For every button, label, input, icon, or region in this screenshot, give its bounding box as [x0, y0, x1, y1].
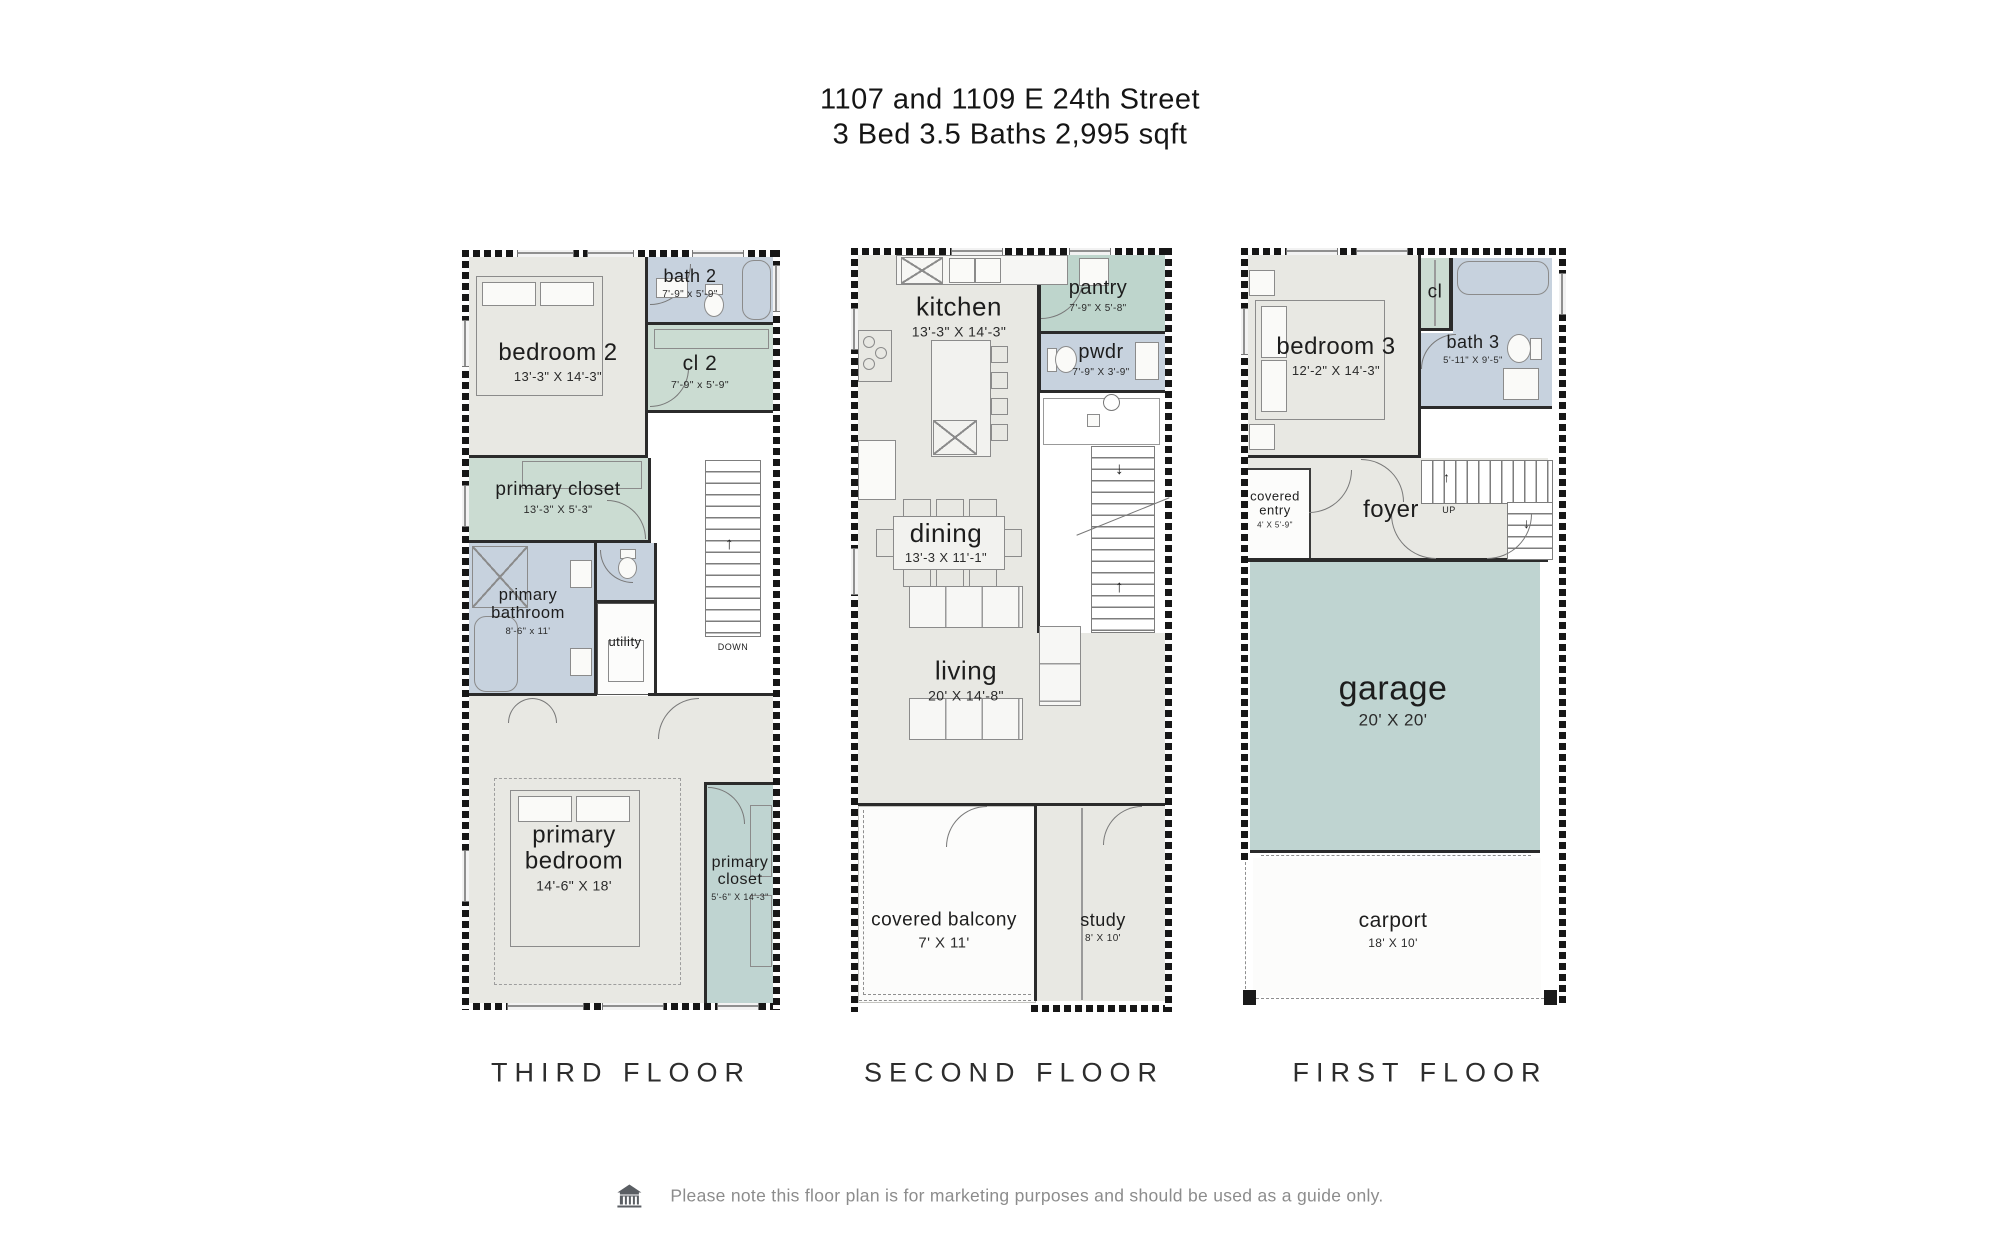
bathtub-fixture: [1457, 261, 1549, 295]
wall: [851, 248, 1172, 255]
chair: [936, 499, 964, 517]
wall: [1037, 390, 1165, 393]
chair: [1004, 529, 1022, 557]
room-label-cl: cl: [1428, 283, 1443, 304]
room-label-foyer: foyer: [1363, 497, 1419, 523]
wall: [704, 782, 773, 785]
primary-closet-name: primary closet: [495, 480, 620, 501]
wall: [773, 250, 780, 1010]
toilet-fixture: [1507, 334, 1531, 363]
cabinet: [933, 420, 977, 455]
window: [462, 485, 469, 527]
carport-open-edge: [1245, 862, 1246, 994]
carport-name: carport: [1359, 910, 1428, 933]
dining-dims: 13'-3 X 11'-1": [905, 551, 987, 565]
bath-3-dims: 5'-11" X 9'-5": [1443, 357, 1503, 367]
cl-2-dims: 7'-9" x 5'-9": [671, 380, 729, 391]
wall: [1031, 1005, 1172, 1012]
pillow: [540, 282, 594, 306]
wall: [858, 803, 1165, 806]
room-label-covered-balcony: covered balcony 7' X 11': [871, 911, 1017, 952]
window: [507, 1003, 584, 1010]
closet-shelf: [654, 329, 769, 349]
window: [462, 320, 469, 367]
floor-plan-page: 1107 and 1109 E 24th Street 3 Bed 3.5 Ba…: [0, 0, 2000, 1250]
stool: [991, 346, 1008, 363]
wall: [648, 458, 651, 540]
room-label-primary-bedroom: primary bedroom 14'-6" X 18': [492, 823, 657, 894]
utility-name: utility: [608, 635, 641, 649]
chair: [969, 569, 997, 587]
covered-balcony-name: covered balcony: [871, 911, 1017, 932]
window: [1356, 248, 1408, 255]
wall: [1250, 850, 1540, 853]
pillow: [482, 282, 536, 306]
primary-bedroom-name: primary bedroom: [492, 823, 657, 875]
chair: [969, 499, 997, 517]
bedroom-2-dims: 13'-3" X 14'-3": [498, 370, 617, 384]
cabinet: [901, 257, 943, 284]
study-dims: 8' X 10': [1080, 934, 1126, 945]
footer-note: Please note this floor plan is for marke…: [670, 1186, 1383, 1207]
primary-closet-lower-name: primary closet: [706, 854, 774, 889]
pwdr-name: pwdr: [1072, 342, 1129, 364]
burner: [863, 358, 875, 370]
window: [773, 265, 780, 312]
page-title: 1107 and 1109 E 24th Street: [820, 84, 1200, 117]
room-label-bedroom-3: bedroom 3 12'-2" X 14'-3": [1276, 334, 1395, 378]
window: [717, 1003, 759, 1010]
window: [1241, 308, 1248, 355]
wall: [1037, 393, 1040, 633]
pantry-name: pantry: [1069, 278, 1128, 300]
room-study: [1037, 806, 1165, 1001]
chair: [903, 569, 931, 587]
down-arrow-icon: ↓: [1523, 516, 1530, 530]
up-arrow-icon: ↑: [1443, 470, 1450, 484]
wall: [645, 257, 648, 455]
house-icon: [616, 1185, 642, 1208]
first-floor-plan: UP ↑ ↓ bedroom 3 12'-2" X 14'-3" cl: [1241, 248, 1566, 1012]
newel-post-cap: [1103, 394, 1120, 411]
window: [1559, 273, 1566, 315]
room-label-primary-closet-lower: primary closet 5'-6" X 14'-3": [706, 854, 774, 902]
primary-bathroom-dims: 8'-6" x 11': [481, 627, 576, 637]
room-label-dining: dining 13'-3 X 11'-1": [905, 519, 987, 565]
wall: [597, 600, 654, 603]
room-label-primary-bathroom: primary bathroom 8'-6" x 11': [481, 587, 576, 637]
room-label-study: study 8' X 10': [1080, 911, 1126, 945]
room-label-bath-3: bath 3 5'-11" X 9'-5": [1443, 333, 1503, 367]
bath-2-name: bath 2: [662, 267, 718, 286]
sofa: [909, 586, 1023, 628]
stool: [991, 424, 1008, 441]
room-label-living: living 20' X 14'-8": [928, 656, 1004, 703]
third-floor-plan: ↑ DOWN bedroom 2: [462, 250, 780, 1010]
balcony-open-edge: [859, 1000, 1031, 1001]
wall: [469, 540, 651, 543]
study-partition-line: [1081, 808, 1083, 1000]
window: [462, 850, 469, 902]
second-floor-plan: ↓ ↑: [851, 248, 1172, 1012]
primary-bathroom-name: primary bathroom: [481, 587, 576, 623]
loveseat: [1039, 626, 1081, 706]
stool: [991, 398, 1008, 415]
sink-fixture: [570, 648, 592, 676]
fridge-fixture: [858, 440, 896, 500]
wall: [1559, 248, 1566, 1005]
sink-fixture: [570, 560, 592, 588]
room-label-carport: carport 18' X 10': [1359, 910, 1428, 950]
kitchen-dims: 13'-3" X 14'-3": [912, 324, 1006, 339]
carport-open-edge: [1251, 998, 1549, 999]
room-label-covered-entry: covered entry 4' X 5'-9": [1247, 490, 1303, 531]
room-label-utility: utility: [608, 635, 641, 649]
carport-post: [1544, 990, 1557, 1005]
stairs-down-label: DOWN: [718, 642, 749, 652]
wall: [1449, 258, 1453, 328]
carport-post: [1243, 990, 1256, 1005]
chair: [903, 499, 931, 517]
wall: [1034, 806, 1037, 1001]
carport-dims: 18' X 10': [1359, 937, 1428, 950]
wall: [1418, 406, 1552, 409]
closet-shelf: [750, 895, 772, 967]
wall: [469, 455, 648, 458]
toilet-fixture: [1530, 338, 1542, 360]
pillow: [576, 796, 630, 822]
dining-name: dining: [905, 519, 987, 547]
floor-caption-third: THIRD FLOOR: [491, 1058, 751, 1089]
wall: [1248, 558, 1548, 562]
window: [517, 250, 574, 257]
balcony-dashed-edge: [863, 810, 864, 995]
floor-caption-second: SECOND FLOOR: [864, 1058, 1164, 1089]
covered-entry-dims: 4' X 5'-9": [1247, 522, 1303, 531]
stool: [991, 372, 1008, 389]
sink-fixture: [1503, 368, 1539, 400]
room-label-pantry: pantry 7'-9" X 5'-8": [1069, 278, 1128, 314]
garage-name: garage: [1339, 670, 1448, 707]
covered-balcony-dims: 7' X 11': [871, 935, 1017, 951]
wall: [654, 543, 657, 693]
foyer-name: foyer: [1363, 497, 1419, 523]
window: [851, 308, 858, 350]
study-name: study: [1080, 911, 1126, 930]
floor-caption-first: FIRST FLOOR: [1292, 1058, 1547, 1089]
burner: [875, 347, 887, 359]
staircase: [1421, 460, 1553, 504]
wall: [648, 693, 773, 696]
room-label-bedroom-2: bedroom 2 13'-3" X 14'-3": [498, 340, 617, 384]
window: [602, 1003, 664, 1010]
bathtub-fixture: [742, 260, 771, 320]
window: [851, 548, 858, 595]
cl-2-name: cl 2: [671, 353, 729, 376]
window: [1069, 248, 1111, 255]
primary-closet-dims: 13'-3" X 5'-3": [495, 504, 620, 516]
room-label-bath-2: bath 2 7'-9" x 5'-9": [662, 267, 718, 301]
room-label-pwdr: pwdr 7'-9" X 3'-9": [1072, 342, 1129, 378]
chair: [936, 569, 964, 587]
sofa: [909, 698, 1023, 740]
down-arrow-icon: ↓: [1115, 460, 1124, 477]
bedroom-3-name: bedroom 3: [1276, 334, 1395, 360]
window: [692, 250, 744, 257]
room-label-primary-closet: primary closet 13'-3" X 5'-3": [495, 480, 620, 516]
nightstand: [1249, 424, 1275, 450]
window: [951, 248, 1003, 255]
bath-2-dims: 7'-9" x 5'-9": [662, 290, 718, 301]
page-subtitle: 3 Bed 3.5 Baths 2,995 sqft: [833, 119, 1188, 152]
garage-dims: 20' X 20': [1339, 711, 1448, 729]
window: [587, 250, 634, 257]
wall: [1418, 328, 1453, 331]
wall: [648, 410, 773, 413]
chair: [876, 529, 894, 557]
bath-3-name: bath 3: [1443, 333, 1503, 352]
wall: [851, 248, 858, 1012]
covered-entry-name: covered entry: [1247, 490, 1303, 518]
living-name: living: [928, 656, 1004, 684]
wall: [1418, 255, 1421, 455]
footer-disclaimer: Please note this floor plan is for marke…: [616, 1185, 1383, 1208]
primary-closet-lower-dims: 5'-6" X 14'-3": [706, 892, 774, 902]
living-dims: 20' X 14'-8": [928, 688, 1004, 703]
room-label-cl-2: cl 2 7'-9" x 5'-9": [671, 353, 729, 391]
bedroom-3-dims: 12'-2" X 14'-3": [1276, 364, 1395, 378]
wall: [1037, 334, 1041, 390]
stair-newel: [1087, 414, 1100, 427]
toilet-fixture: [618, 557, 637, 579]
pwdr-dims: 7'-9" X 3'-9": [1072, 367, 1129, 378]
kitchen-sink-fixture: [975, 258, 1001, 283]
sink-fixture: [1135, 342, 1159, 380]
pantry-dims: 7'-9" X 5'-8": [1069, 303, 1128, 314]
kitchen-name: kitchen: [912, 292, 1006, 320]
kitchen-sink-fixture: [949, 258, 975, 283]
garage-door-line: [1261, 855, 1531, 856]
wall: [648, 322, 773, 325]
primary-bedroom-dims: 14'-6" X 18': [492, 878, 657, 893]
wall: [469, 693, 597, 696]
cl-name: cl: [1428, 283, 1443, 304]
up-arrow-icon: ↑: [1115, 578, 1124, 595]
burner: [863, 336, 875, 348]
window: [1286, 248, 1338, 255]
room-label-kitchen: kitchen 13'-3" X 14'-3": [912, 292, 1006, 339]
pillow: [518, 796, 572, 822]
balcony-dashed-edge: [863, 994, 1031, 995]
up-arrow-icon: ↑: [725, 535, 734, 552]
stair-landing: [1043, 398, 1160, 445]
wall: [1248, 455, 1421, 458]
wall: [594, 543, 597, 693]
room-label-garage: garage 20' X 20': [1339, 670, 1448, 729]
nightstand: [1249, 270, 1275, 296]
bedroom-2-name: bedroom 2: [498, 340, 617, 366]
wall: [1165, 248, 1172, 1012]
stairs-up-label: UP: [1442, 505, 1456, 515]
wall: [1037, 331, 1165, 334]
